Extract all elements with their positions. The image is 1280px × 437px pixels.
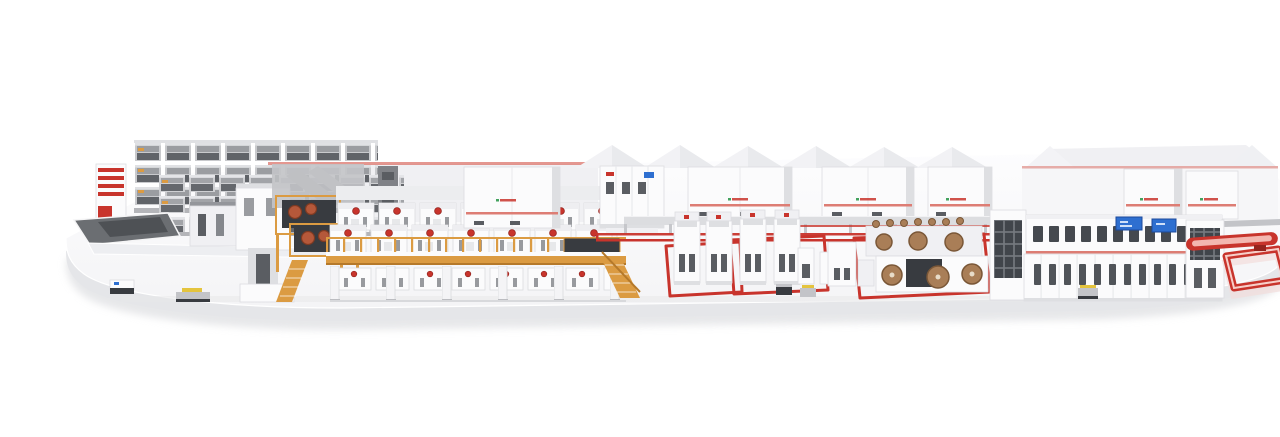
splicer-tower (774, 210, 800, 285)
agv-cart (110, 280, 134, 294)
paper-roll (909, 232, 927, 250)
aux-cabinet (828, 242, 856, 286)
cabinet (928, 167, 992, 219)
eave-line-right (1022, 166, 1278, 169)
splicer-tower (706, 212, 732, 285)
hmi-screen (1116, 217, 1142, 230)
brand-mark (606, 172, 614, 176)
paper-roll (945, 233, 963, 251)
facer-roll (289, 206, 302, 219)
agv-cart (800, 285, 816, 297)
glass-grid (994, 220, 1022, 278)
render-canvas (40, 16, 1280, 421)
hmi-screen (1152, 219, 1176, 232)
splicer-tower (740, 210, 766, 285)
deck-beam (326, 256, 626, 263)
production-line-render (40, 16, 1280, 421)
cabinet (1186, 171, 1238, 219)
small-hmi-screen (644, 172, 654, 178)
loop-carriage (1254, 245, 1266, 251)
facer-roll (302, 232, 315, 245)
facer-roll (306, 204, 317, 215)
agv-cart (1078, 285, 1098, 299)
cabinet (464, 167, 560, 228)
splicer-tower (674, 212, 700, 285)
cabinet (822, 167, 914, 219)
agv-cart (776, 284, 792, 295)
support-columns (330, 266, 626, 304)
paper-roll (876, 234, 892, 250)
cabinet (1124, 169, 1182, 219)
dry-end-machine (990, 210, 1224, 301)
